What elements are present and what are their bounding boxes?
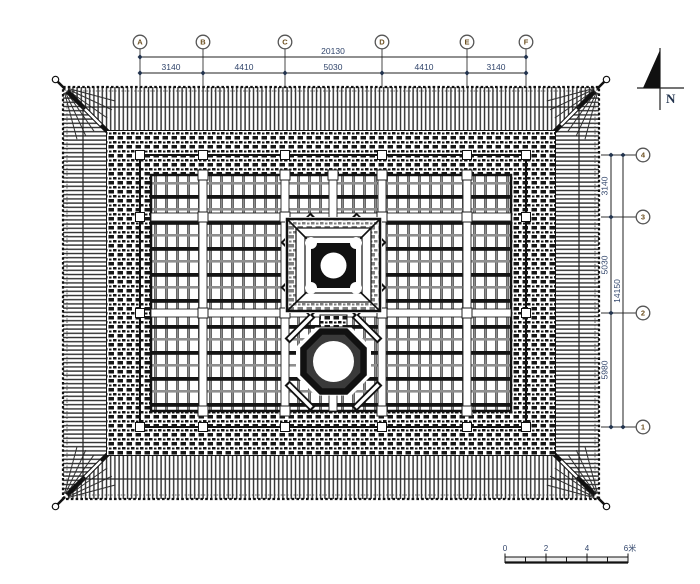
dim-total-right: 14150 <box>612 279 622 303</box>
scale-label-4: 4 <box>585 544 590 553</box>
dim-seg-right-2: 5030 <box>600 255 610 274</box>
axis-bubble-C: C <box>282 38 288 47</box>
scale-bar: 0 2 4 6米 <box>503 543 636 563</box>
roof-plan <box>52 76 609 509</box>
caisson-octagon <box>296 328 371 396</box>
axis-bubbles-right: 4 3 2 1 <box>636 148 650 434</box>
dimension-chain-top: 20130 3140 4410 5030 4410 3140 A B C D E… <box>133 35 533 87</box>
axis-bubble-E: E <box>464 38 469 47</box>
scale-label-0: 0 <box>503 544 508 553</box>
dim-seg-top-2: 4410 <box>235 62 254 72</box>
north-label: N <box>666 91 676 106</box>
axis-bubble-F: F <box>524 38 529 47</box>
axis-bubble-A: A <box>137 38 143 47</box>
axis-bubble-2: 2 <box>641 309 645 318</box>
architectural-plan-svg: 20130 3140 4410 5030 4410 3140 A B C D E… <box>0 0 700 584</box>
axis-bubble-D: D <box>379 38 385 47</box>
dim-seg-top-4: 4410 <box>415 62 434 72</box>
dim-seg-right-3: 5980 <box>600 360 610 379</box>
north-arrow: N <box>637 48 684 110</box>
axis-bubble-B: B <box>200 38 206 47</box>
scale-label-6m: 6米 <box>624 543 636 553</box>
dim-seg-top-1: 3140 <box>162 62 181 72</box>
dim-seg-top-5: 3140 <box>487 62 506 72</box>
axis-bubble-1: 1 <box>641 423 645 432</box>
dim-total-top: 20130 <box>321 46 345 56</box>
dim-seg-right-1: 3140 <box>600 176 610 195</box>
north-arrow-blade <box>643 50 660 88</box>
caisson-square <box>285 217 382 327</box>
dimension-chain-right: 3140 5030 5980 14150 4 3 2 1 <box>600 148 650 434</box>
scale-label-2: 2 <box>544 544 549 553</box>
dim-seg-top-3: 5030 <box>324 62 343 72</box>
drawing-canvas: 20130 3140 4410 5030 4410 3140 A B C D E… <box>0 0 700 584</box>
axis-bubble-3: 3 <box>641 213 645 222</box>
